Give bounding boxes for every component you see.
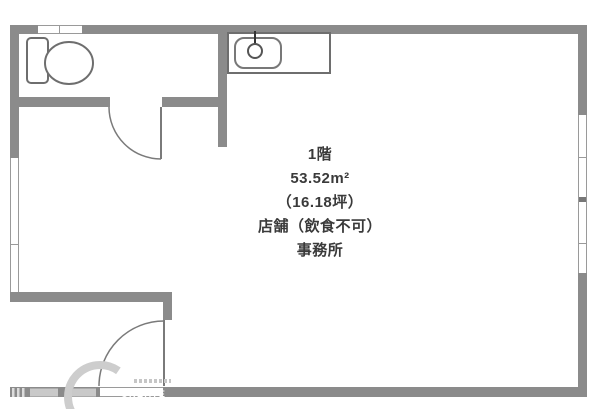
watermark-fragment-icon	[30, 389, 58, 397]
watermark-fragment-icon	[12, 388, 15, 397]
watermark-logo-c-icon	[68, 365, 118, 409]
usage-label: 店舗（飲食不可）	[195, 215, 445, 239]
watermark-fragment-icon	[17, 388, 20, 397]
unit-info: 1階 53.52m² （16.18坪） 店舗（飲食不可） 事務所	[195, 143, 445, 263]
area-sqm-label: 53.52m²	[195, 167, 445, 191]
floor-label: 1階	[195, 143, 445, 167]
office-label: 事務所	[195, 239, 445, 263]
watermark-small-text	[134, 379, 171, 383]
faucet-icon	[248, 44, 262, 58]
area-tsubo-label: （16.18坪）	[195, 191, 445, 215]
watermark-fragment-icon	[22, 388, 25, 397]
watermark-text: CREATE	[121, 389, 166, 399]
entrance-door-arc-icon	[99, 321, 164, 386]
toilet-bowl-icon	[45, 42, 93, 84]
watermark-fragment-icon	[72, 389, 96, 397]
toilet-door-arc-icon	[109, 107, 161, 159]
floor-plan: 1階 53.52m² （16.18坪） 店舗（飲食不可） 事務所 CREATE	[0, 0, 600, 409]
